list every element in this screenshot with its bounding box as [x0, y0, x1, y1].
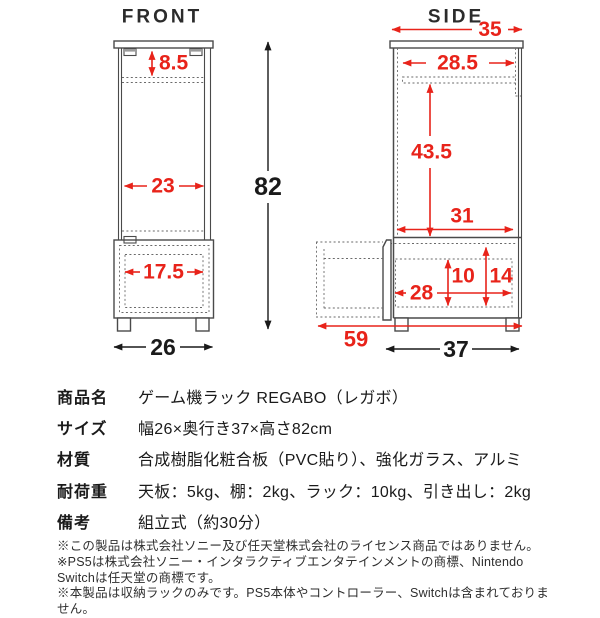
spec-row-material: 材質 合成樹脂化粧合板（PVC貼り）、強化ガラス、アルミ	[57, 443, 531, 474]
dimension-drawing: FRONT	[0, 0, 600, 372]
spec-label: 材質	[57, 446, 138, 470]
spec-value: 天板：5kg、棚：2kg、ラック：10kg、引き出し：2kg	[138, 478, 531, 502]
side-dim-drawer-inner-height: 10	[452, 265, 475, 288]
spec-label: サイズ	[57, 415, 138, 439]
spec-table: 商品名 ゲーム機ラック REGABO（レガボ） サイズ 幅26×奥行き37×高さ…	[57, 380, 531, 537]
spec-label: 耐荷重	[57, 478, 138, 502]
front-dim-top-gap: 8.5	[159, 52, 189, 75]
spec-value: 合成樹脂化粧合板（PVC貼り）、強化ガラス、アルミ	[138, 446, 522, 470]
spec-row-product-name: 商品名 ゲーム機ラック REGABO（レガボ）	[57, 380, 531, 411]
spec-row-size: サイズ 幅26×奥行き37×高さ82cm	[57, 411, 531, 442]
side-dimensions: 35 28.5 43.5 31 14 10 28 59	[318, 18, 522, 362]
front-dim-width: 26	[150, 334, 176, 360]
front-dim-inner-width: 23	[151, 175, 174, 198]
spec-label: 商品名	[57, 384, 138, 408]
spec-row-load-capacity: 耐荷重 天板：5kg、棚：2kg、ラック：10kg、引き出し：2kg	[57, 474, 531, 505]
spec-label: 備考	[57, 509, 138, 533]
side-view: SIDE	[316, 7, 523, 363]
front-view: FRONT	[114, 7, 282, 361]
side-dim-drawer-inner-depth: 28	[410, 282, 434, 305]
side-dim-depth: 37	[443, 336, 469, 362]
footnote-license: ※この製品は株式会社ソニー及び任天堂株式会社のライセンス商品ではありません。	[57, 539, 549, 555]
side-dim-shelf-depth: 31	[450, 205, 474, 228]
front-dim-drawer-inner-width: 17.5	[143, 261, 184, 284]
side-dim-inner-depth: 28.5	[437, 52, 478, 75]
spec-value: ゲーム機ラック REGABO（レガボ）	[138, 384, 408, 408]
footnote-trademark: ※PS5は株式会社ソニー・インタラクティブエンタテインメントの商標、Ninten…	[57, 555, 549, 587]
product-diagram: FRONT	[0, 0, 600, 377]
footnotes: ※この製品は株式会社ソニー及び任天堂株式会社のライセンス商品ではありません。 ※…	[57, 539, 549, 618]
front-view-title: FRONT	[122, 7, 202, 28]
spec-value: 幅26×奥行き37×高さ82cm	[138, 415, 332, 439]
side-dim-extended-depth: 59	[344, 327, 368, 352]
front-dim-height: 82	[254, 173, 282, 201]
side-dim-upper-inner-height: 43.5	[411, 141, 452, 164]
spec-row-notes: 備考 組立式（約30分）	[57, 506, 531, 537]
footnote-contents: ※本製品は収納ラックのみです。PS5本体やコントローラー、Switchは含まれて…	[57, 586, 549, 618]
side-dim-drawer-section-height: 14	[490, 265, 514, 288]
side-dim-top-depth: 35	[478, 18, 502, 41]
spec-value: 組立式（約30分）	[138, 509, 271, 533]
side-view-title: SIDE	[428, 7, 484, 28]
